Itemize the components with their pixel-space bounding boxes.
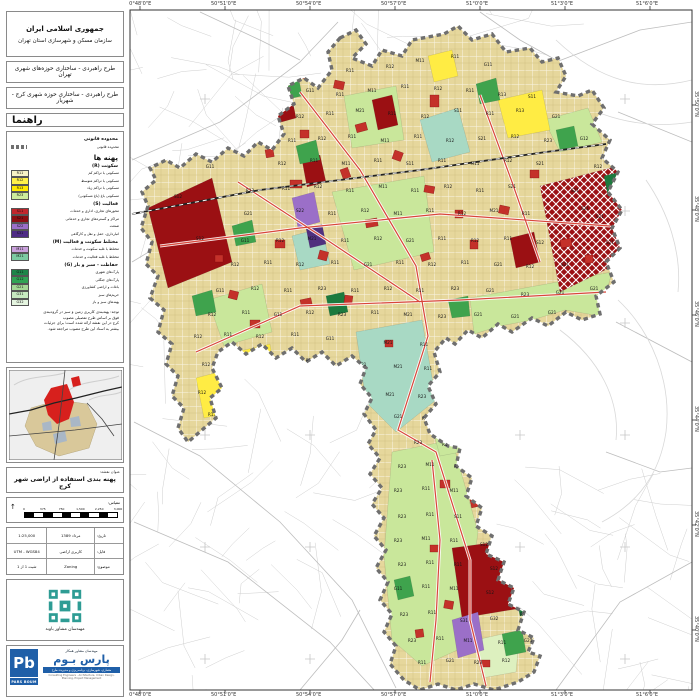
svg-text:G12: G12 [580, 136, 589, 141]
svg-text:R11: R11 [396, 260, 405, 265]
svg-text:M11: M11 [464, 638, 473, 643]
pars-name: پارس بـوم [43, 654, 120, 666]
legend-item-label: باغات و اراضی کشاورزی [32, 285, 119, 289]
svg-text:R11: R11 [436, 636, 445, 641]
legend-item: R12مسکونی با تراکم متوسط [11, 177, 119, 185]
svg-text:R12: R12 [504, 158, 513, 163]
map-title-caption: عنوان نقشه: [10, 469, 120, 474]
svg-text:R11: R11 [498, 640, 507, 645]
svg-text:R12: R12 [231, 262, 240, 267]
table-label: فایل: [94, 544, 123, 559]
svg-text:R11: R11 [426, 512, 435, 517]
svg-text:R23: R23 [246, 188, 255, 193]
svg-text:S11: S11 [271, 362, 279, 367]
svg-text:S12: S12 [490, 566, 498, 571]
svg-text:S12: S12 [514, 464, 522, 469]
legend-item: M21مختلط با غلبه فعالیت و خدمات [11, 253, 119, 261]
svg-text:R12: R12 [251, 286, 260, 291]
svg-text:R11: R11 [242, 310, 251, 315]
axis-label-right: 35°40'0"N [693, 616, 699, 642]
svg-text:G21: G21 [364, 262, 373, 267]
svg-text:R11: R11 [522, 211, 531, 216]
axis-label-right: 35°48'0"N [693, 196, 699, 222]
svg-text:M21: M21 [384, 340, 393, 345]
legend-swatch: M21 [11, 253, 29, 261]
legend-swatch: G31 [11, 291, 29, 299]
svg-text:G11: G11 [484, 62, 493, 67]
legend-item: M11مختلط با غلبه سکونت و خدمات [11, 246, 119, 254]
svg-text:R11: R11 [351, 288, 360, 293]
svg-text:R12: R12 [511, 134, 520, 139]
svg-text:G11: G11 [274, 312, 283, 317]
legend-item-label: مختلط با غلبه فعالیت و خدمات [32, 255, 119, 259]
table-row: فایل:کاربری اراضیUTM - WGS84 [7, 544, 123, 560]
svg-text:G21: G21 [590, 286, 599, 291]
legend-item-label: مسکونی با تراکم متوسط [32, 179, 119, 183]
axis-label-right: 35°50'0"N [693, 91, 699, 117]
svg-text:R11: R11 [388, 111, 397, 116]
legend-group-title: حفاظت - سبز و باز (G) [11, 263, 118, 268]
svg-text:R11: R11 [450, 538, 459, 543]
svg-text:M11: M11 [471, 161, 480, 166]
svg-text:R12: R12 [318, 136, 327, 141]
svg-text:R11: R11 [224, 332, 233, 337]
svg-text:M11: M11 [416, 58, 425, 63]
svg-text:M21: M21 [404, 312, 413, 317]
country-title: جمهوری اسلامی ایران [7, 25, 123, 33]
scale-tick-label: 3,000 [114, 507, 123, 511]
legend-swatch: G21 [11, 284, 29, 292]
svg-text:G21: G21 [548, 310, 557, 315]
svg-text:R11: R11 [466, 88, 475, 93]
pars-services-strip: معماری، شهرسازی، برنامه‌ریزی و مدیریت طر… [43, 667, 120, 673]
inset-map [9, 370, 122, 460]
svg-text:R11: R11 [346, 68, 355, 73]
table-label: موضوع: [94, 559, 123, 574]
svg-text:R11: R11 [282, 186, 291, 191]
svg-text:G11: G11 [306, 88, 315, 93]
legend-item: G31حریم‌های سبز [11, 291, 119, 299]
axis-label-bottom: 51°0'0"E [466, 692, 488, 698]
pars-boum-en-strip: PARS BOUM [10, 678, 38, 685]
svg-text:R11: R11 [331, 260, 340, 265]
svg-text:R11: R11 [478, 486, 487, 491]
svg-text:G21: G21 [446, 658, 455, 663]
svg-text:R23: R23 [394, 488, 403, 493]
legend-note-line: بیشتر به اسناد این طرح مصوب مراجعه شود. [11, 326, 119, 332]
svg-text:G11: G11 [326, 336, 335, 341]
svg-text:R13: R13 [516, 108, 525, 113]
svg-text:G21: G21 [394, 414, 403, 419]
svg-text:M11: M11 [379, 184, 388, 189]
svg-text:R23: R23 [408, 638, 417, 643]
axis-label-top: 50°54'0"E [296, 1, 321, 7]
table-value: Zoning [46, 559, 94, 574]
axis-label-top: 51°3'0"E [551, 1, 573, 7]
svg-text:S21: S21 [571, 188, 579, 193]
svg-text:R12: R12 [458, 211, 467, 216]
svg-text:R11: R11 [428, 610, 437, 615]
svg-text:R23: R23 [338, 312, 347, 317]
svg-text:M11: M11 [342, 161, 351, 166]
legend-zones-title: پهنه ها [11, 154, 118, 162]
svg-text:S11: S11 [454, 514, 462, 519]
legend-swatch: S22 [11, 223, 29, 231]
svg-text:R12: R12 [208, 312, 217, 317]
scalebar-caption: مقیاس: [10, 500, 120, 505]
svg-text:G21: G21 [486, 288, 495, 293]
svg-text:S11: S11 [528, 94, 536, 99]
svg-text:R23: R23 [414, 440, 423, 445]
scale-tick-label: 750 [59, 507, 65, 511]
svg-text:R12: R12 [434, 86, 443, 91]
svg-text:S12: S12 [536, 240, 544, 245]
svg-text:R11: R11 [426, 208, 435, 213]
svg-text:R12: R12 [202, 362, 211, 367]
svg-text:R11: R11 [438, 158, 447, 163]
legend-item: G12پارک‌های جنگلی [11, 276, 119, 284]
map-title-text: پهنه بندی استفاده از اراضی شهر کرج [10, 476, 120, 490]
scalebar-box: مقیاس: ↑ 03757501,5002,2503,000 [6, 497, 124, 523]
bavand-kufic-logo-icon [47, 588, 83, 624]
svg-text:S31: S31 [460, 618, 468, 623]
svg-text:R23: R23 [451, 286, 460, 291]
svg-text:M11: M11 [381, 138, 390, 143]
svg-text:R12: R12 [374, 236, 383, 241]
svg-text:R23: R23 [400, 612, 409, 617]
table-label: تاریخ: [94, 528, 123, 543]
svg-text:R23: R23 [398, 514, 407, 519]
scalebar-ticks: 03757501,5002,2503,000 [24, 507, 118, 512]
legend-swatch: S21 [11, 215, 29, 223]
svg-text:R23: R23 [438, 314, 447, 319]
legend-item: S22صنعت [11, 223, 119, 231]
svg-text:M11: M11 [450, 586, 459, 591]
pars-boum-mark: Pb PARS BOUM [10, 649, 40, 693]
scalebar-bar [24, 512, 118, 518]
svg-text:S12: S12 [480, 542, 488, 547]
axis-label-bottom: 50°51'0"E [211, 692, 236, 698]
svg-text:G21: G21 [406, 238, 415, 243]
legend-swatch: G12 [11, 276, 29, 284]
svg-text:R12: R12 [421, 114, 430, 119]
svg-text:G21: G21 [494, 262, 503, 267]
svg-text:S21: S21 [508, 184, 516, 189]
north-arrow-icon: ↑ [10, 503, 16, 511]
svg-text:G11: G11 [241, 238, 250, 243]
plan-title-2: طرح راهبردی - ساختاری حوزه شهری کرج - شه… [6, 87, 124, 109]
svg-text:R23: R23 [484, 466, 493, 471]
map-info-table: تاریخ:مرداد 13891:25,000فایل:کاربری اراض… [6, 527, 124, 575]
scale-tick-label: 0 [23, 507, 25, 511]
legend-item: G11پارک‌های شهری [11, 269, 119, 277]
table-value-2: شیت 1 از 1 [7, 559, 46, 574]
legend-boundary-item: محدوده قانونی [11, 143, 119, 151]
svg-text:R11: R11 [451, 54, 460, 59]
svg-text:R11: R11 [236, 360, 245, 365]
svg-text:R12: R12 [446, 138, 455, 143]
sidebar: جمهوری اسلامی ایران سازمان مسکن و شهرساز… [0, 0, 129, 700]
svg-text:G11: G11 [520, 588, 529, 593]
legend-group-title: مختلط سکونت و فعالیت (M) [11, 240, 118, 245]
svg-text:R12: R12 [236, 408, 245, 413]
legend-item-label: پارک‌های جنگلی [32, 278, 119, 282]
svg-text:G11: G11 [230, 386, 239, 391]
svg-text:R11: R11 [426, 560, 435, 565]
svg-text:G21: G21 [556, 290, 565, 295]
legend-swatch: R11 [11, 170, 29, 178]
legend-item-label: مراکز و گستره‌های تجاری و خدماتی [32, 217, 119, 221]
svg-text:R11: R11 [326, 111, 335, 116]
axis-label-bottom: 50°54'0"E [296, 692, 321, 698]
legend-title: راهنما [6, 113, 124, 127]
svg-text:M11: M11 [422, 536, 431, 541]
svg-text:R11: R11 [422, 584, 431, 589]
legend-swatch: R12 [11, 177, 29, 185]
legend-item-label: حریم‌های سبز [32, 293, 119, 297]
axis-label-top: 50°51'0"E [211, 1, 236, 7]
svg-text:S21: S21 [581, 206, 589, 211]
svg-text:M11: M11 [368, 88, 377, 93]
legend-item: S21مراکز و گستره‌های تجاری و خدماتی [11, 215, 119, 223]
svg-text:R11: R11 [371, 310, 380, 315]
legend-item-label: انبارداری، حمل و نقل و کارگاهی [32, 232, 119, 236]
svg-text:G11: G11 [394, 586, 403, 591]
svg-text:S22: S22 [534, 572, 542, 577]
legend-groups: سکونت (R)R11مسکونی با تراکم کمR12مسکونی … [11, 164, 119, 307]
svg-text:R11: R11 [520, 540, 529, 545]
svg-text:R23: R23 [398, 562, 407, 567]
svg-text:S21: S21 [596, 214, 604, 219]
legend-item-label: مختلط با غلبه سکونت و خدمات [32, 247, 119, 251]
svg-text:G11: G11 [216, 288, 225, 293]
svg-text:G32: G32 [490, 616, 499, 621]
svg-text:R23: R23 [418, 394, 427, 399]
svg-text:R11: R11 [484, 512, 493, 517]
legend-swatch: S31 [11, 230, 29, 238]
svg-text:R12: R12 [276, 238, 285, 243]
svg-text:R23: R23 [521, 292, 530, 297]
svg-text:R12: R12 [386, 64, 395, 69]
scalebar: 03757501,5002,2503,000 [24, 507, 118, 519]
svg-text:R11: R11 [414, 134, 423, 139]
legend-item: R23مسکونی باغ (باغ مسکونی) [11, 192, 119, 200]
bavand-caption: مهندسان مشاور باوند [45, 627, 84, 632]
svg-text:R11: R11 [346, 188, 355, 193]
svg-text:R11: R11 [374, 158, 383, 163]
svg-text:G21: G21 [474, 312, 483, 317]
legend-item: G21باغات و اراضی کشاورزی [11, 284, 119, 292]
svg-text:M11: M11 [450, 488, 459, 493]
legend-item-label: محورهای تجاری، اداری و خدمات [32, 209, 119, 213]
svg-text:R11: R11 [420, 342, 429, 347]
svg-text:R11: R11 [461, 260, 470, 265]
axis-label-top: 50°57'0"E [381, 1, 406, 7]
svg-text:G21: G21 [244, 211, 253, 216]
svg-text:S21: S21 [561, 262, 569, 267]
axis-label-bottom: 51°6'0"E [636, 692, 658, 698]
svg-text:R12: R12 [278, 161, 287, 166]
svg-text:R11: R11 [422, 486, 431, 491]
svg-text:R12: R12 [444, 184, 453, 189]
svg-text:R11: R11 [341, 238, 350, 243]
legend-item: R11مسکونی با تراکم کم [11, 170, 119, 178]
bavand-logo-box: مهندسان مشاور باوند [6, 579, 124, 641]
axis-label-right: 35°46'0"N [693, 301, 699, 327]
svg-text:R12: R12 [296, 114, 305, 119]
svg-text:S11: S11 [406, 161, 414, 166]
legend-body: محدوده قانونی محدوده قانونی پهنه ها سکون… [6, 131, 124, 363]
svg-text:M11: M11 [426, 462, 435, 467]
map-title-box: عنوان نقشه: پهنه بندی استفاده از اراضی ش… [6, 467, 124, 493]
svg-text:R11: R11 [411, 188, 420, 193]
svg-text:R12: R12 [471, 238, 480, 243]
location-inset-box [6, 367, 124, 463]
svg-text:R11: R11 [284, 288, 293, 293]
svg-text:G21: G21 [514, 516, 523, 521]
svg-text:S22: S22 [296, 208, 304, 213]
legend-swatch: R13 [11, 185, 29, 193]
table-value: مرداد 1389 [46, 528, 94, 543]
legend-item-label: پارک‌های شهری [32, 270, 119, 274]
svg-text:M21: M21 [356, 108, 365, 113]
svg-text:S21: S21 [478, 136, 486, 141]
axis-label-bottom: 51°3'0"E [551, 692, 573, 698]
svg-text:R11: R11 [336, 92, 345, 97]
pb-logo-icon: Pb [10, 649, 38, 677]
scale-tick-label: 1,500 [76, 507, 85, 511]
svg-text:R11: R11 [454, 562, 463, 567]
svg-text:R13: R13 [208, 412, 217, 417]
svg-text:R23: R23 [470, 440, 479, 445]
axis-label-top: 51°6'0"E [636, 1, 658, 7]
legend-item-label: پهنه‌های سبز و باز [32, 300, 119, 304]
axis-label-bottom: 50°48'0"E [126, 692, 151, 698]
legend-swatch: G32 [11, 299, 29, 307]
svg-text:R12: R12 [194, 334, 203, 339]
svg-text:R11: R11 [262, 388, 271, 393]
pars-english-line: Consulting Engineers . Architecture, Urb… [43, 674, 120, 680]
svg-text:R11: R11 [418, 660, 427, 665]
svg-text:R23: R23 [474, 660, 483, 665]
table-value-2: 1:25,000 [7, 528, 46, 543]
table-row: موضوع:Zoningشیت 1 از 1 [7, 559, 123, 574]
legend-swatch: G11 [11, 269, 29, 277]
svg-text:R12: R12 [594, 164, 603, 169]
svg-text:R12: R12 [314, 184, 323, 189]
legend-item-label: صنعت [32, 224, 119, 228]
svg-text:M21: M21 [490, 208, 499, 213]
svg-text:R11: R11 [348, 134, 357, 139]
svg-text:S12: S12 [174, 194, 182, 199]
svg-text:G21: G21 [524, 638, 533, 643]
svg-text:S22: S22 [536, 596, 544, 601]
svg-text:S21: S21 [536, 161, 544, 166]
svg-text:M11: M11 [394, 211, 403, 216]
svg-text:S12: S12 [196, 236, 204, 241]
boundary-item-label: محدوده قانونی [30, 145, 119, 149]
organization-title: سازمان مسکن و شهرسازی استان تهران [7, 38, 123, 44]
plan-title-1: طرح راهبردی - ساختاری حوزه‌های شهری تهرا… [6, 61, 124, 83]
svg-text:R12: R12 [361, 208, 370, 213]
svg-text:R12: R12 [526, 264, 535, 269]
legend-boundary-section: محدوده قانونی [11, 137, 118, 142]
axis-label-bottom: 50°57'0"E [381, 692, 406, 698]
legend-note: توجه: پهنه‌بندی کاربری زمین و سبز در گرو… [11, 309, 119, 331]
svg-text:M21: M21 [308, 236, 317, 241]
svg-text:R12: R12 [306, 310, 315, 315]
svg-text:R12: R12 [256, 334, 265, 339]
svg-text:R11: R11 [486, 111, 495, 116]
svg-text:G11: G11 [206, 164, 215, 169]
axis-label-top: 51°0'0"E [466, 1, 488, 7]
svg-text:G21: G21 [552, 114, 561, 119]
svg-text:S11: S11 [454, 108, 462, 113]
legend-item: R13مسکونی با تراکم زیاد [11, 185, 119, 193]
legend-swatch: M11 [11, 246, 29, 254]
svg-text:R12: R12 [508, 490, 517, 495]
svg-text:S12: S12 [486, 590, 494, 595]
axis-label-right: 35°44'0"N [693, 406, 699, 432]
svg-text:R12: R12 [384, 286, 393, 291]
svg-text:R11: R11 [310, 158, 319, 163]
svg-text:G31: G31 [550, 544, 559, 549]
map-sheet: R11R12M11R11G11G11R11M11R11R12R11R13S11R… [0, 0, 700, 700]
svg-text:R11: R11 [476, 188, 485, 193]
legend-group-title: فعالیت (S) [11, 202, 118, 207]
svg-text:R11: R11 [328, 211, 337, 216]
svg-text:R11: R11 [288, 138, 297, 143]
svg-text:M21: M21 [386, 392, 395, 397]
svg-text:R23: R23 [544, 138, 553, 143]
legend-group-title: سکونت (R) [11, 164, 118, 169]
table-row: تاریخ:مرداد 13891:25,000 [7, 528, 123, 544]
svg-text:R13: R13 [498, 92, 507, 97]
svg-text:S22: S22 [532, 486, 540, 491]
axis-label-top: 50°48'0"E [126, 1, 151, 7]
svg-text:R11: R11 [438, 236, 447, 241]
legend-swatch: S11 [11, 208, 29, 216]
svg-text:R12: R12 [296, 262, 305, 267]
svg-text:R12: R12 [198, 390, 207, 395]
legend-item: G32پهنه‌های سبز و باز [11, 299, 119, 307]
boundary-dash-swatch [11, 145, 27, 149]
title-block-header: جمهوری اسلامی ایران سازمان مسکن و شهرساز… [6, 11, 124, 57]
svg-text:R11: R11 [504, 236, 513, 241]
svg-text:R12: R12 [428, 262, 437, 267]
svg-text:R11: R11 [264, 260, 273, 265]
table-value-2: UTM - WGS84 [7, 544, 46, 559]
svg-text:R11: R11 [401, 84, 410, 89]
svg-text:R11: R11 [424, 366, 433, 371]
scale-tick-label: 2,250 [95, 507, 104, 511]
legend-swatch: R23 [11, 192, 29, 200]
legend-item-label: مسکونی باغ (باغ مسکونی) [32, 194, 119, 198]
svg-text:M21: M21 [394, 364, 403, 369]
svg-text:R11: R11 [416, 288, 425, 293]
legend-item: S11محورهای تجاری، اداری و خدمات [11, 208, 119, 216]
svg-text:G21: G21 [511, 314, 520, 319]
legend-item: S31انبارداری، حمل و نقل و کارگاهی [11, 230, 119, 238]
table-value: کاربری اراضی [46, 544, 94, 559]
legend-item-label: مسکونی با تراکم زیاد [32, 186, 119, 190]
pars-boum-logo-box: Pb PARS BOUM مهندسان مشاور همکار پارس بـ… [6, 645, 124, 697]
legend-item-label: مسکونی با تراکم کم [32, 171, 119, 175]
svg-text:R12: R12 [502, 658, 511, 663]
svg-text:R23: R23 [318, 286, 327, 291]
svg-text:S21: S21 [606, 240, 614, 245]
svg-text:R11: R11 [291, 332, 300, 337]
